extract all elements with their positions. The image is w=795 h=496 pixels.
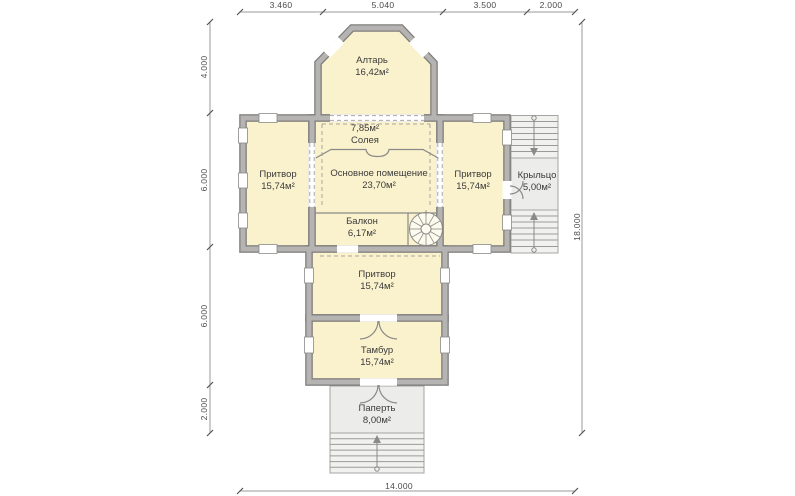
room-name: Тамбур [360,345,393,357]
room-label-balcony: Балкон 6,17м² [346,216,378,240]
room-name: Балкон [346,216,378,228]
room-area: 15,74м² [259,181,296,193]
dim-label-top-2: 5.040 [372,0,395,10]
dim-label-left-2: 6.000 [199,169,209,192]
room-area: 16,42м² [355,67,388,79]
room-label-main-hall: Основное помещение 23,70м² [330,168,427,192]
room-label-altar: Алтарь 16,42м² [355,55,388,79]
room-area: 15,74м² [358,281,395,293]
room-name: Крыльцо [518,170,557,182]
floor-plan-drawing [0,0,795,496]
room-name: Притвор [259,169,296,181]
room-label-narthex-south: Притвор 15,74м² [358,269,395,293]
room-area: 6,17м² [346,228,378,240]
room-area: 8,00м² [359,415,396,427]
dim-label-right-total: 18.000 [572,213,582,241]
room-label-papert: Паперть 8,00м² [359,403,396,427]
room-label-soleya: 7,85м² Солея [351,123,379,147]
room-area: 5,00м² [518,182,557,194]
dim-label-left-3: 6.000 [199,305,209,328]
room-name: Алтарь [355,55,388,67]
room-area: 15,74м² [454,181,491,193]
dim-label-top-1: 3.460 [270,0,293,10]
room-area: 23,70м² [330,180,427,192]
room-name: Притвор [454,169,491,181]
room-label-narthex-left: Притвор 15,74м² [259,169,296,193]
floor-plan: Алтарь 16,42м² 7,85м² Солея Притвор 15,7… [0,0,795,496]
room-label-porch-right: Крыльцо 5,00м² [518,170,557,194]
dim-label-top-3: 3.500 [474,0,497,10]
room-label-narthex-right: Притвор 15,74м² [454,169,491,193]
dim-label-top-4: 2.000 [540,0,563,10]
room-name: Солея [351,135,379,147]
dim-label-left-4: 2.000 [199,398,209,421]
room-name: Притвор [358,269,395,281]
room-name: Паперть [359,403,396,415]
room-label-tambour: Тамбур 15,74м² [360,345,393,369]
room-area: 7,85м² [351,123,379,135]
dim-label-left-1: 4.000 [199,56,209,79]
walls [243,28,507,382]
room-name: Основное помещение [330,168,427,180]
dim-label-bottom-total: 14.000 [385,481,413,491]
south-porch-and-stairs [330,386,424,473]
room-area: 15,74м² [360,357,393,369]
